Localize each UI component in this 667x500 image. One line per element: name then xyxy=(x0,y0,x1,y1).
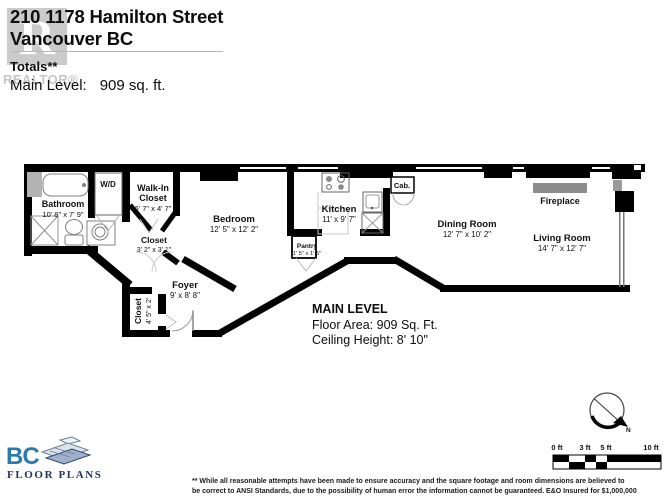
label-foyer-dims: 9' x 8' 8" xyxy=(170,291,200,300)
label-bedroom-dims: 12' 5" x 12' 2" xyxy=(210,225,258,234)
label-living: Living Room xyxy=(533,233,591,244)
label-bathroom: Bathroom xyxy=(42,199,85,209)
scale-label-0: 0 ft xyxy=(551,443,563,452)
label-kitchen: Kitchen xyxy=(322,204,357,215)
toilet-fixture xyxy=(65,220,83,246)
label-pantry: Pantry xyxy=(297,243,318,250)
scale-bar: 0 ft 3 ft 5 ft 10 ft xyxy=(551,443,661,469)
disclaimer-line1: ** While all reasonable attempts have be… xyxy=(192,477,667,487)
label-closet-hall: Closet xyxy=(141,235,167,245)
right-wall-gray-segment xyxy=(613,180,622,191)
disclaimer-line2: be correct to ANSI Standards, due to the… xyxy=(192,487,667,497)
floor-plans-logo-text: FLOOR PLANS xyxy=(7,469,103,481)
scale-label-3: 3 ft xyxy=(579,443,591,452)
floorplan-svg: Bathroom 10' 8" x 7' 9" W/D Walk-In Clos… xyxy=(0,0,667,500)
main-level-summary: MAIN LEVEL Floor Area: 909 Sq. Ft. Ceili… xyxy=(312,302,438,349)
label-closet-foyer-dims: 4' 5" x 2' xyxy=(146,298,153,324)
disclaimer: ** While all reasonable attempts have be… xyxy=(192,477,667,496)
bathtub-fixture xyxy=(43,174,88,196)
label-kitchen-dims: 11' x 9' 7" xyxy=(322,215,356,224)
compass-rose: N xyxy=(590,393,631,434)
door-arc-entry xyxy=(172,310,193,331)
bc-logo-illustration xyxy=(42,437,90,464)
label-wd: W/D xyxy=(100,180,116,189)
summary-ceiling-height: Ceiling Height: 8' 10" xyxy=(312,333,438,349)
label-closet-hall-dims: 3' 2" x 3' 1" xyxy=(137,247,172,254)
summary-title: MAIN LEVEL xyxy=(312,302,438,318)
label-walkin-1: Walk-In xyxy=(137,183,169,193)
label-walkin-dims: 6' 7" x 4' 7" xyxy=(135,204,172,213)
bc-logo-text: BC xyxy=(6,443,39,471)
door-swing-foyer-closet xyxy=(166,315,176,329)
sink-vanity-fixture xyxy=(87,221,115,245)
compass-north-label: N xyxy=(626,427,631,434)
label-bathroom-dims: 10' 8" x 7' 9" xyxy=(42,210,83,219)
label-fireplace: Fireplace xyxy=(540,196,580,206)
main-level-label: Main Level: xyxy=(10,77,87,94)
label-living-dims: 14' 7" x 12' 7" xyxy=(538,244,586,253)
label-bedroom: Bedroom xyxy=(213,214,255,225)
fireplace-bar xyxy=(533,183,587,193)
label-foyer: Foyer xyxy=(172,280,198,291)
label-cabinet: Cab. xyxy=(394,181,410,190)
label-pantry-dims: 1' 5" x 1' 5" xyxy=(293,251,322,257)
scale-label-10: 10 ft xyxy=(643,443,659,452)
label-closet-foyer: Closet xyxy=(133,298,143,324)
header-divider xyxy=(12,51,223,52)
label-walkin-2: Closet xyxy=(139,193,167,203)
summary-floor-area: Floor Area: 909 Sq. Ft. xyxy=(312,318,438,334)
tub-surround-block xyxy=(27,172,42,197)
label-dining: Dining Room xyxy=(437,219,496,230)
label-dining-dims: 12' 7" x 10' 2" xyxy=(443,230,491,239)
window-right xyxy=(619,212,625,287)
main-level-line: Main Level: 909 sq. ft. xyxy=(10,77,166,94)
shower-fixture xyxy=(31,216,58,245)
main-level-value: 909 sq. ft. xyxy=(100,77,166,94)
scale-label-5: 5 ft xyxy=(600,443,612,452)
address-line1: 210 1178 Hamilton Street xyxy=(10,6,223,28)
address-line2: Vancouver BC xyxy=(10,28,133,50)
floorplan-page: Bathroom 10' 8" x 7' 9" W/D Walk-In Clos… xyxy=(0,0,667,500)
totals-label: Totals** xyxy=(10,59,57,74)
kitchen-sink-fixture xyxy=(363,192,382,212)
